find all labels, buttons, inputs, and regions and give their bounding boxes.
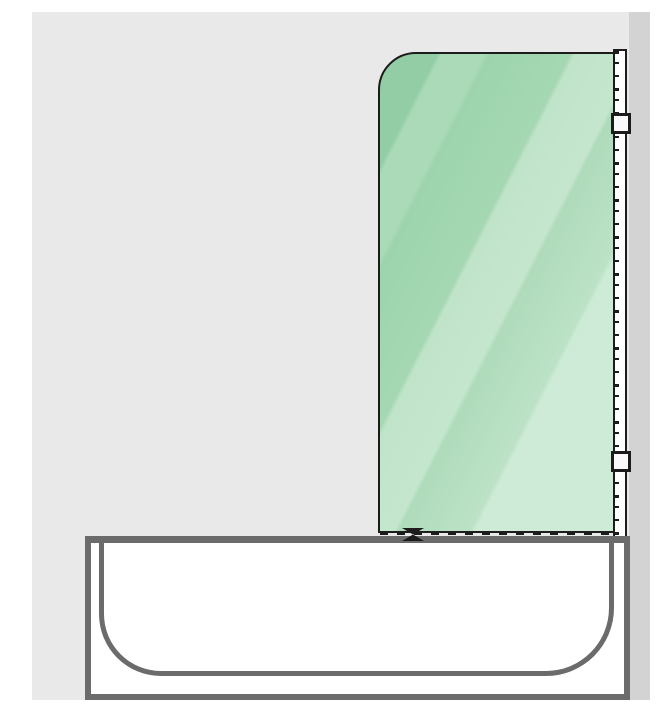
water-deflector-shape [402, 528, 424, 541]
water-deflector [402, 527, 424, 542]
hinge-bracket-bottom [611, 451, 631, 472]
hinge-bracket-top [611, 113, 631, 134]
bathtub-rim [85, 536, 630, 700]
bathtub-basin [99, 543, 614, 676]
side-wall-strip [629, 12, 650, 700]
glass-panel [378, 52, 615, 533]
diagram-canvas [0, 0, 672, 724]
